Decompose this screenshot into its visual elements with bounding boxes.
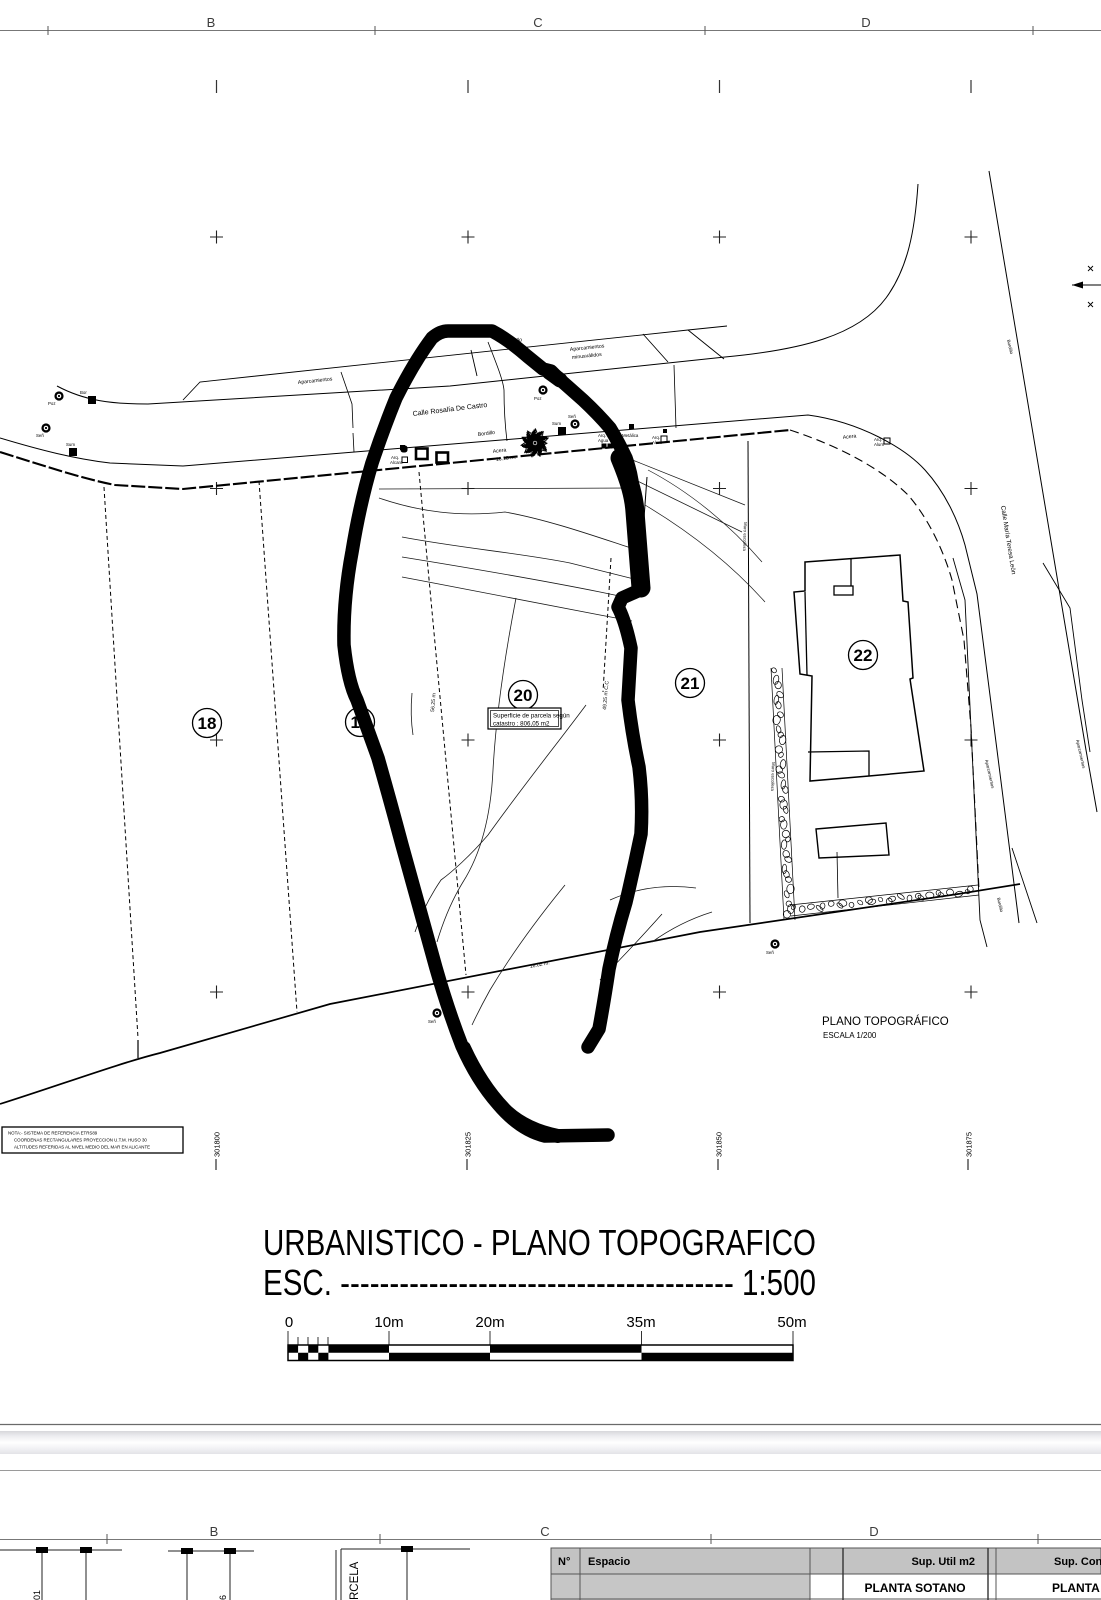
- svg-text:Señ: Señ: [766, 950, 774, 955]
- svg-text:ALTITUDES REFERIDAS AL NIVEL M: ALTITUDES REFERIDAS AL NIVEL MEDIO DEL M…: [14, 1145, 150, 1150]
- svg-text:B: B: [207, 15, 216, 30]
- svg-text:Señ: Señ: [428, 1019, 436, 1024]
- svg-text:URBANISTICO - PLANO TOPOGRAFIC: URBANISTICO - PLANO TOPOGRAFICO: [263, 1222, 816, 1263]
- svg-text:Poz: Poz: [534, 396, 542, 401]
- svg-text:C: C: [540, 1524, 549, 1539]
- svg-text:18: 18: [198, 714, 217, 733]
- svg-text:Espacio: Espacio: [588, 1556, 630, 1568]
- svg-text:B: B: [210, 1524, 219, 1539]
- svg-text:20m: 20m: [475, 1314, 504, 1331]
- svg-text:ESCALA 1/200: ESCALA 1/200: [823, 1031, 877, 1040]
- svg-text:ESC. -------------------------: ESC. -----------------------------------…: [263, 1262, 816, 1303]
- svg-text:Sum: Sum: [66, 442, 75, 447]
- svg-text:Alum: Alum: [652, 440, 662, 445]
- svg-text:Agua: Agua: [598, 438, 609, 443]
- svg-text:D: D: [869, 1524, 878, 1539]
- svg-text:COORDENAS RECTANGULARES PROYEC: COORDENAS RECTANGULARES PROYECCION U.T.M…: [14, 1138, 147, 1143]
- svg-text:Sum: Sum: [552, 421, 561, 426]
- svg-text:21: 21: [681, 674, 700, 693]
- svg-text:0: 0: [285, 1314, 293, 1331]
- svg-text:10m: 10m: [374, 1314, 403, 1331]
- svg-text:Señ: Señ: [568, 414, 576, 419]
- svg-text:Bor: Bor: [80, 390, 87, 395]
- svg-text:PLANO TOPOGRÁFICO: PLANO TOPOGRÁFICO: [822, 1015, 949, 1028]
- svg-text:Señ: Señ: [36, 433, 44, 438]
- svg-text:Muro escollera: Muro escollera: [742, 522, 748, 552]
- svg-text:Alcant.: Alcant.: [390, 460, 403, 465]
- svg-text:301875: 301875: [965, 1132, 974, 1157]
- svg-text:PLANTA SO: PLANTA SO: [1052, 1581, 1101, 1595]
- svg-text:N°: N°: [558, 1556, 570, 1568]
- svg-text:catastro : 806,05 m2: catastro : 806,05 m2: [493, 721, 550, 728]
- svg-text:NOTA:- SISTEMA DE REFERENCIA E: NOTA:- SISTEMA DE REFERENCIA ETRS89: [8, 1131, 98, 1136]
- svg-text:01: 01: [32, 1590, 42, 1600]
- svg-text:PLANTA SOTANO: PLANTA SOTANO: [864, 1581, 965, 1595]
- svg-text:20: 20: [514, 686, 533, 705]
- svg-text:6: 6: [218, 1595, 228, 1600]
- svg-text:Sup. Util m2: Sup. Util m2: [911, 1556, 975, 1568]
- svg-text:301825: 301825: [464, 1132, 473, 1157]
- svg-text:22: 22: [854, 646, 873, 665]
- svg-text:Muro escollera: Muro escollera: [770, 762, 776, 792]
- svg-text:Alum: Alum: [874, 442, 884, 447]
- svg-text:C: C: [533, 15, 542, 30]
- svg-text:Sup. Con: Sup. Con: [1054, 1556, 1101, 1568]
- svg-text:50m: 50m: [777, 1314, 806, 1331]
- svg-text:Superficie de parcela según: Superficie de parcela según: [493, 713, 570, 720]
- svg-text:RCELA: RCELA: [349, 1561, 361, 1600]
- svg-text:Metálica: Metálica: [622, 433, 639, 438]
- svg-text:301800: 301800: [213, 1132, 222, 1157]
- svg-text:301850: 301850: [715, 1132, 724, 1157]
- svg-text:D: D: [861, 15, 870, 30]
- svg-text:35m: 35m: [626, 1314, 655, 1331]
- svg-text:Poz: Poz: [48, 401, 56, 406]
